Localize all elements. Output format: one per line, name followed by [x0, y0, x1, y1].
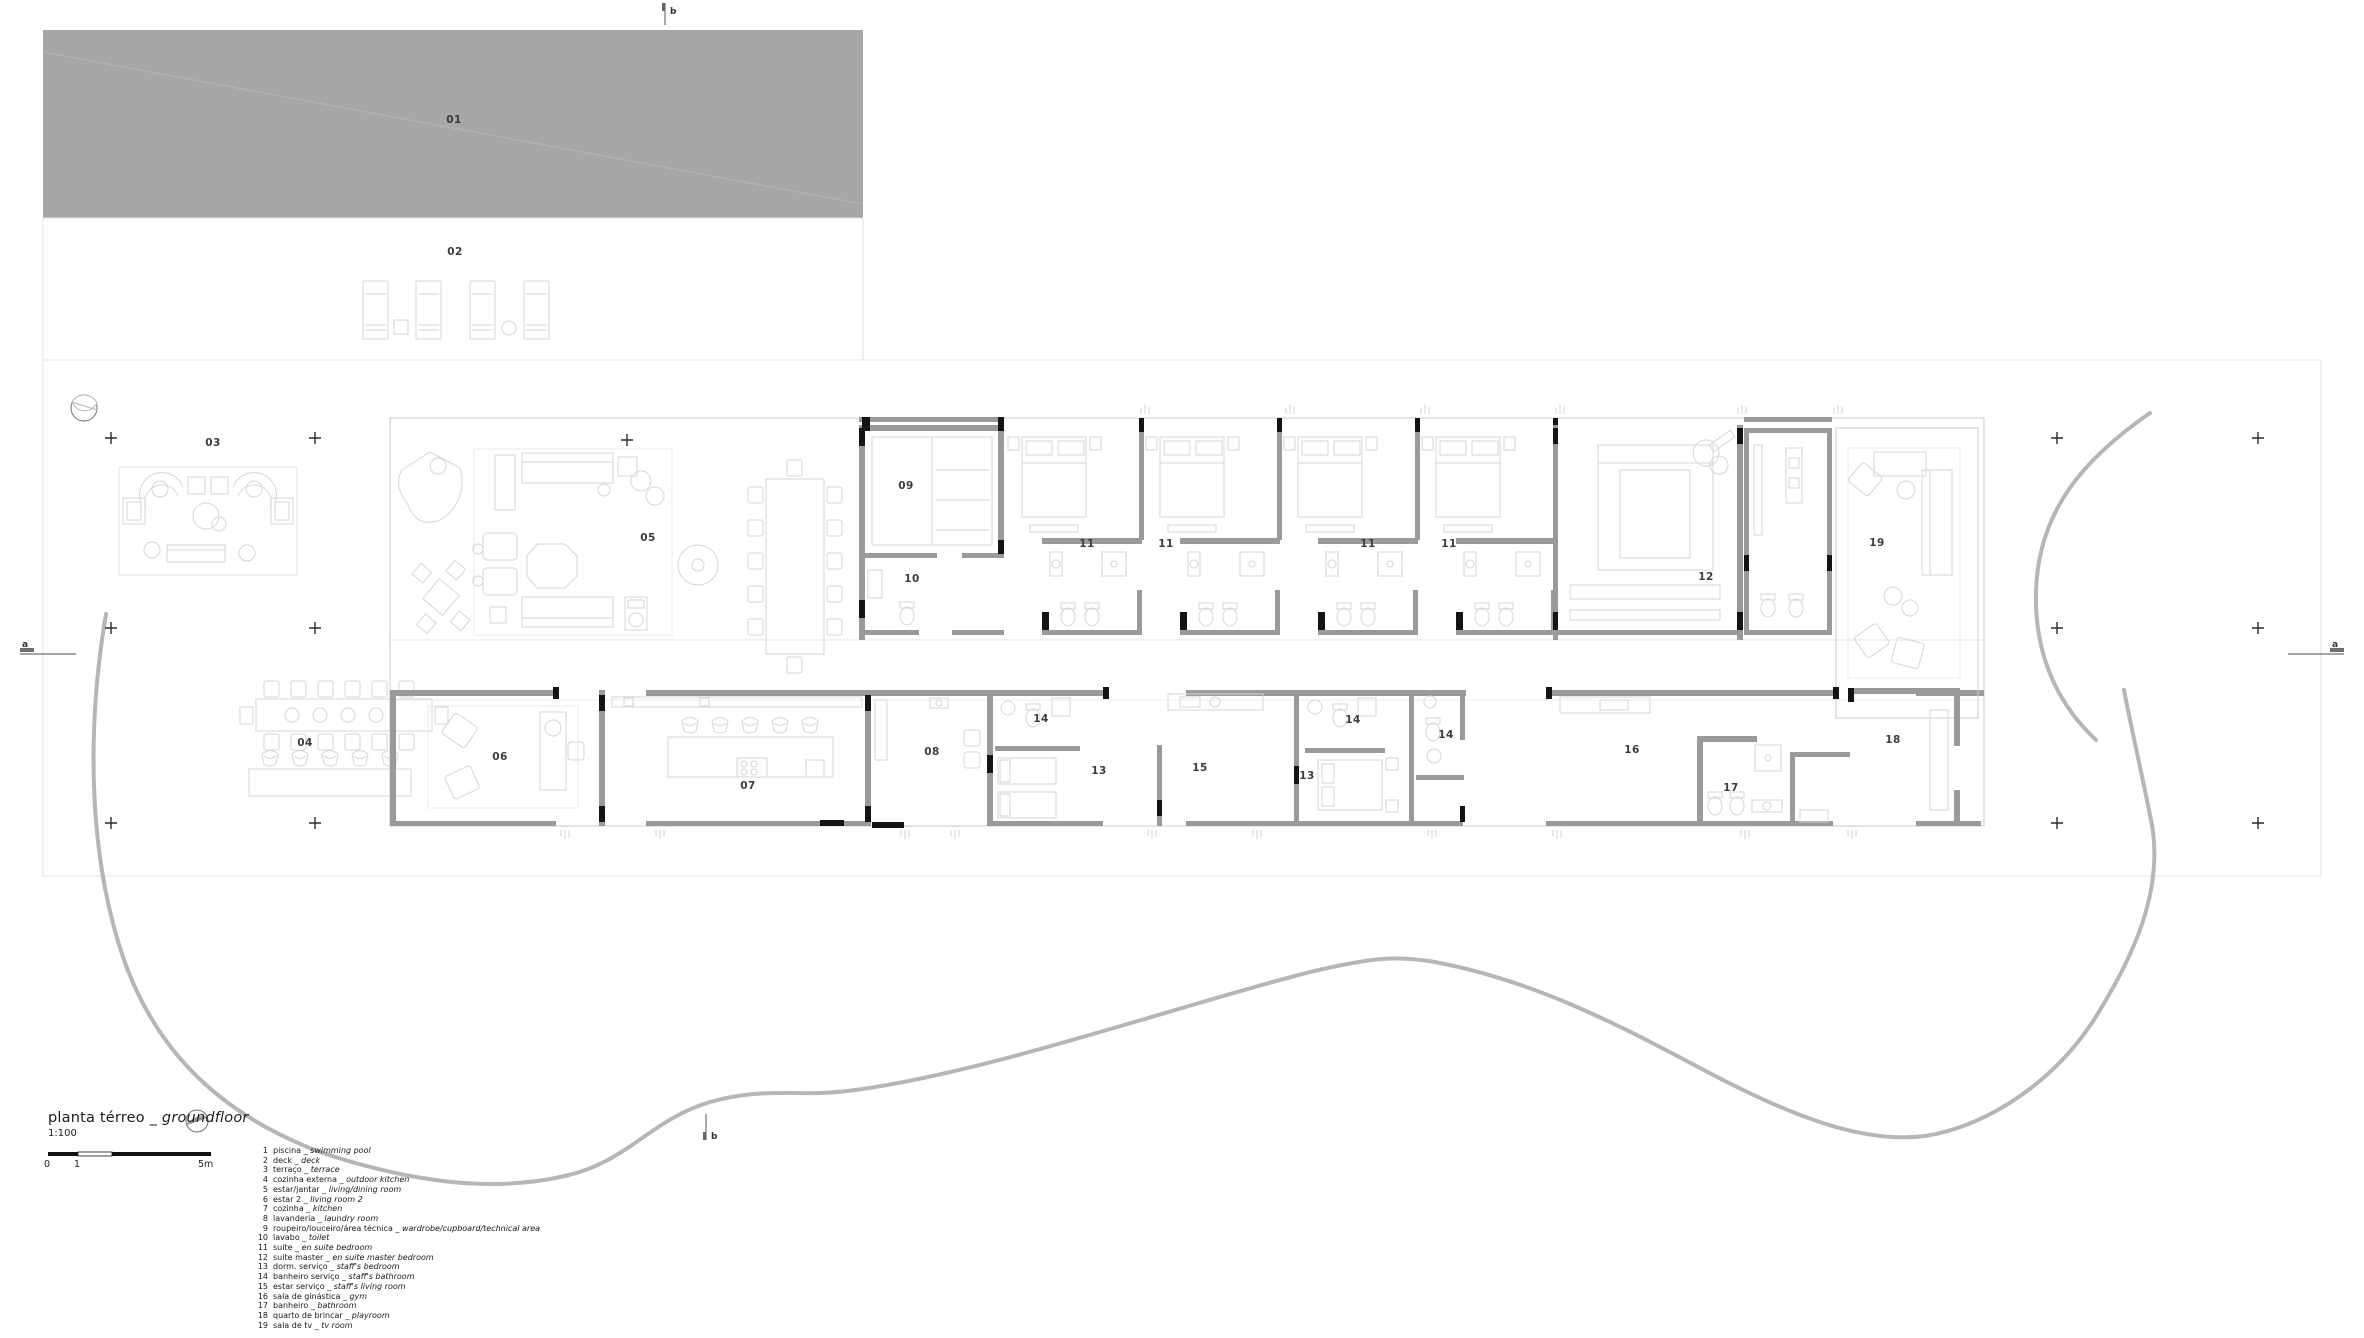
- section-letter: b: [670, 7, 677, 17]
- legend-item: 15estar serviço _ staff's living room: [252, 1282, 540, 1292]
- room-number-label: 14: [1033, 713, 1048, 725]
- bathroom-17: [1697, 736, 1782, 826]
- room-number-label: 14: [1438, 729, 1453, 741]
- room-number-label: 03: [205, 437, 220, 449]
- legend-item: 12suite master _ en suite master bedroom: [252, 1253, 540, 1263]
- tv-room-furniture: [1836, 428, 1978, 718]
- legend-item: 6estar 2 _ living room 2: [252, 1195, 540, 1205]
- room-number-label: 17: [1723, 782, 1738, 794]
- kitchen-furniture: [612, 690, 904, 828]
- room-number-label: 02: [447, 246, 462, 258]
- floor-plan-sheet: b b a a 0 1 5m 0102030405060708091011111…: [0, 0, 2364, 1338]
- room-number-label: 04: [297, 737, 312, 749]
- legend-item: 13dorm. serviço _ staff's bedroom: [252, 1262, 540, 1272]
- legend-item: 7cozinha _ kitchen: [252, 1204, 540, 1214]
- drawing-scale: 1:100: [48, 1128, 278, 1139]
- living-dining-furniture: [389, 449, 842, 673]
- room-number-label: 16: [1624, 744, 1639, 756]
- room-number-label: 06: [492, 751, 507, 763]
- legend-item: 14banheiro serviço _ staff's bathroom: [252, 1272, 540, 1282]
- room-number-label: 01: [446, 114, 461, 126]
- driveway-curves: [94, 413, 2155, 1184]
- room-number-label: 11: [1441, 538, 1456, 550]
- section-letter: b: [711, 1132, 718, 1142]
- room-number-label: 14: [1345, 714, 1360, 726]
- section-marker-left: a: [20, 640, 76, 654]
- floor-plan-drawing: b b a a 0 1 5m 0102030405060708091011111…: [0, 0, 2364, 1338]
- legend-item: 16sala de ginástica _ gym: [252, 1292, 540, 1302]
- room-number-label: 19: [1869, 537, 1884, 549]
- legend-item: 10lavabo _ toilet: [252, 1233, 540, 1243]
- room-number-label: 11: [1079, 538, 1094, 550]
- legend-item: 5estar/jantar _ living/dining room: [252, 1185, 540, 1195]
- deck-area: [43, 218, 863, 360]
- room-number-label: 18: [1885, 734, 1900, 746]
- section-marker-right: a: [2288, 640, 2344, 654]
- staff-living: [1168, 690, 1299, 826]
- room-number-label: 11: [1158, 538, 1173, 550]
- legend-item: 9roupeiro/louceiro/área técnica _ wardro…: [252, 1224, 540, 1234]
- master-suite: [1553, 425, 1743, 640]
- staff-quarters-a: [995, 698, 1162, 826]
- section-marker-bottom: b: [703, 1114, 718, 1142]
- deck-lounger: [524, 281, 549, 339]
- scale-bar: 0 1 5m: [44, 1152, 213, 1170]
- legend-item: 2deck _ deck: [252, 1156, 540, 1166]
- laundry-room: [875, 690, 993, 826]
- north-compass-icon: [71, 395, 97, 421]
- room-number-label: 12: [1698, 571, 1713, 583]
- building: [389, 405, 1984, 839]
- legend-item: 11suite _ en suite bedroom: [252, 1243, 540, 1253]
- room-number-label: 10: [904, 573, 919, 585]
- deck-lounger: [363, 281, 388, 339]
- section-letter: a: [2332, 640, 2338, 650]
- scale-tick: 1: [74, 1159, 80, 1170]
- room-legend: 1piscina _ swimming pool2deck _ deck3ter…: [252, 1146, 540, 1330]
- legend-item: 17banheiro _ bathroom: [252, 1301, 540, 1311]
- legend-item: 8lavanderia _ laundry room: [252, 1214, 540, 1224]
- legend-item: 18quarto de brincar _ playroom: [252, 1311, 540, 1321]
- legend-item: 19sala de tv _ tv room: [252, 1321, 540, 1331]
- room-number-label: 05: [640, 532, 655, 544]
- terrace-furniture: [119, 467, 297, 575]
- room-number-label: 08: [924, 746, 939, 758]
- room-number-label: 13: [1091, 765, 1106, 777]
- outdoor-dining-furniture: [240, 681, 448, 796]
- scale-tick: 5m: [198, 1159, 213, 1170]
- wardrobe-lavabo-block: [859, 425, 1004, 640]
- room-number-label: 11: [1360, 538, 1375, 550]
- gym: [1560, 697, 1650, 713]
- room-number-label: 07: [740, 780, 755, 792]
- title-block: planta térreo _ groundfloor 1:100: [48, 1110, 278, 1139]
- staff-wc: [1416, 690, 1465, 822]
- legend-item: 3terraço _ terrace: [252, 1165, 540, 1175]
- deck-lounger: [470, 281, 495, 339]
- deck-lounger: [416, 281, 441, 339]
- room-number-label: 09: [898, 480, 913, 492]
- playroom: [1790, 688, 1960, 826]
- master-bathroom-block: [1744, 428, 1832, 635]
- legend-item: 4cozinha externa _ outdoor kitchen: [252, 1175, 540, 1185]
- room-number-label: 15: [1192, 762, 1207, 774]
- section-marker-top: b: [662, 3, 677, 25]
- scale-tick: 0: [44, 1159, 50, 1170]
- section-letter: a: [22, 640, 28, 650]
- legend-item: 1piscina _ swimming pool: [252, 1146, 540, 1156]
- drawing-title: planta térreo _ groundfloor: [48, 1110, 278, 1126]
- staff-quarters-b: [1305, 690, 1414, 826]
- room-number-label: 13: [1299, 770, 1314, 782]
